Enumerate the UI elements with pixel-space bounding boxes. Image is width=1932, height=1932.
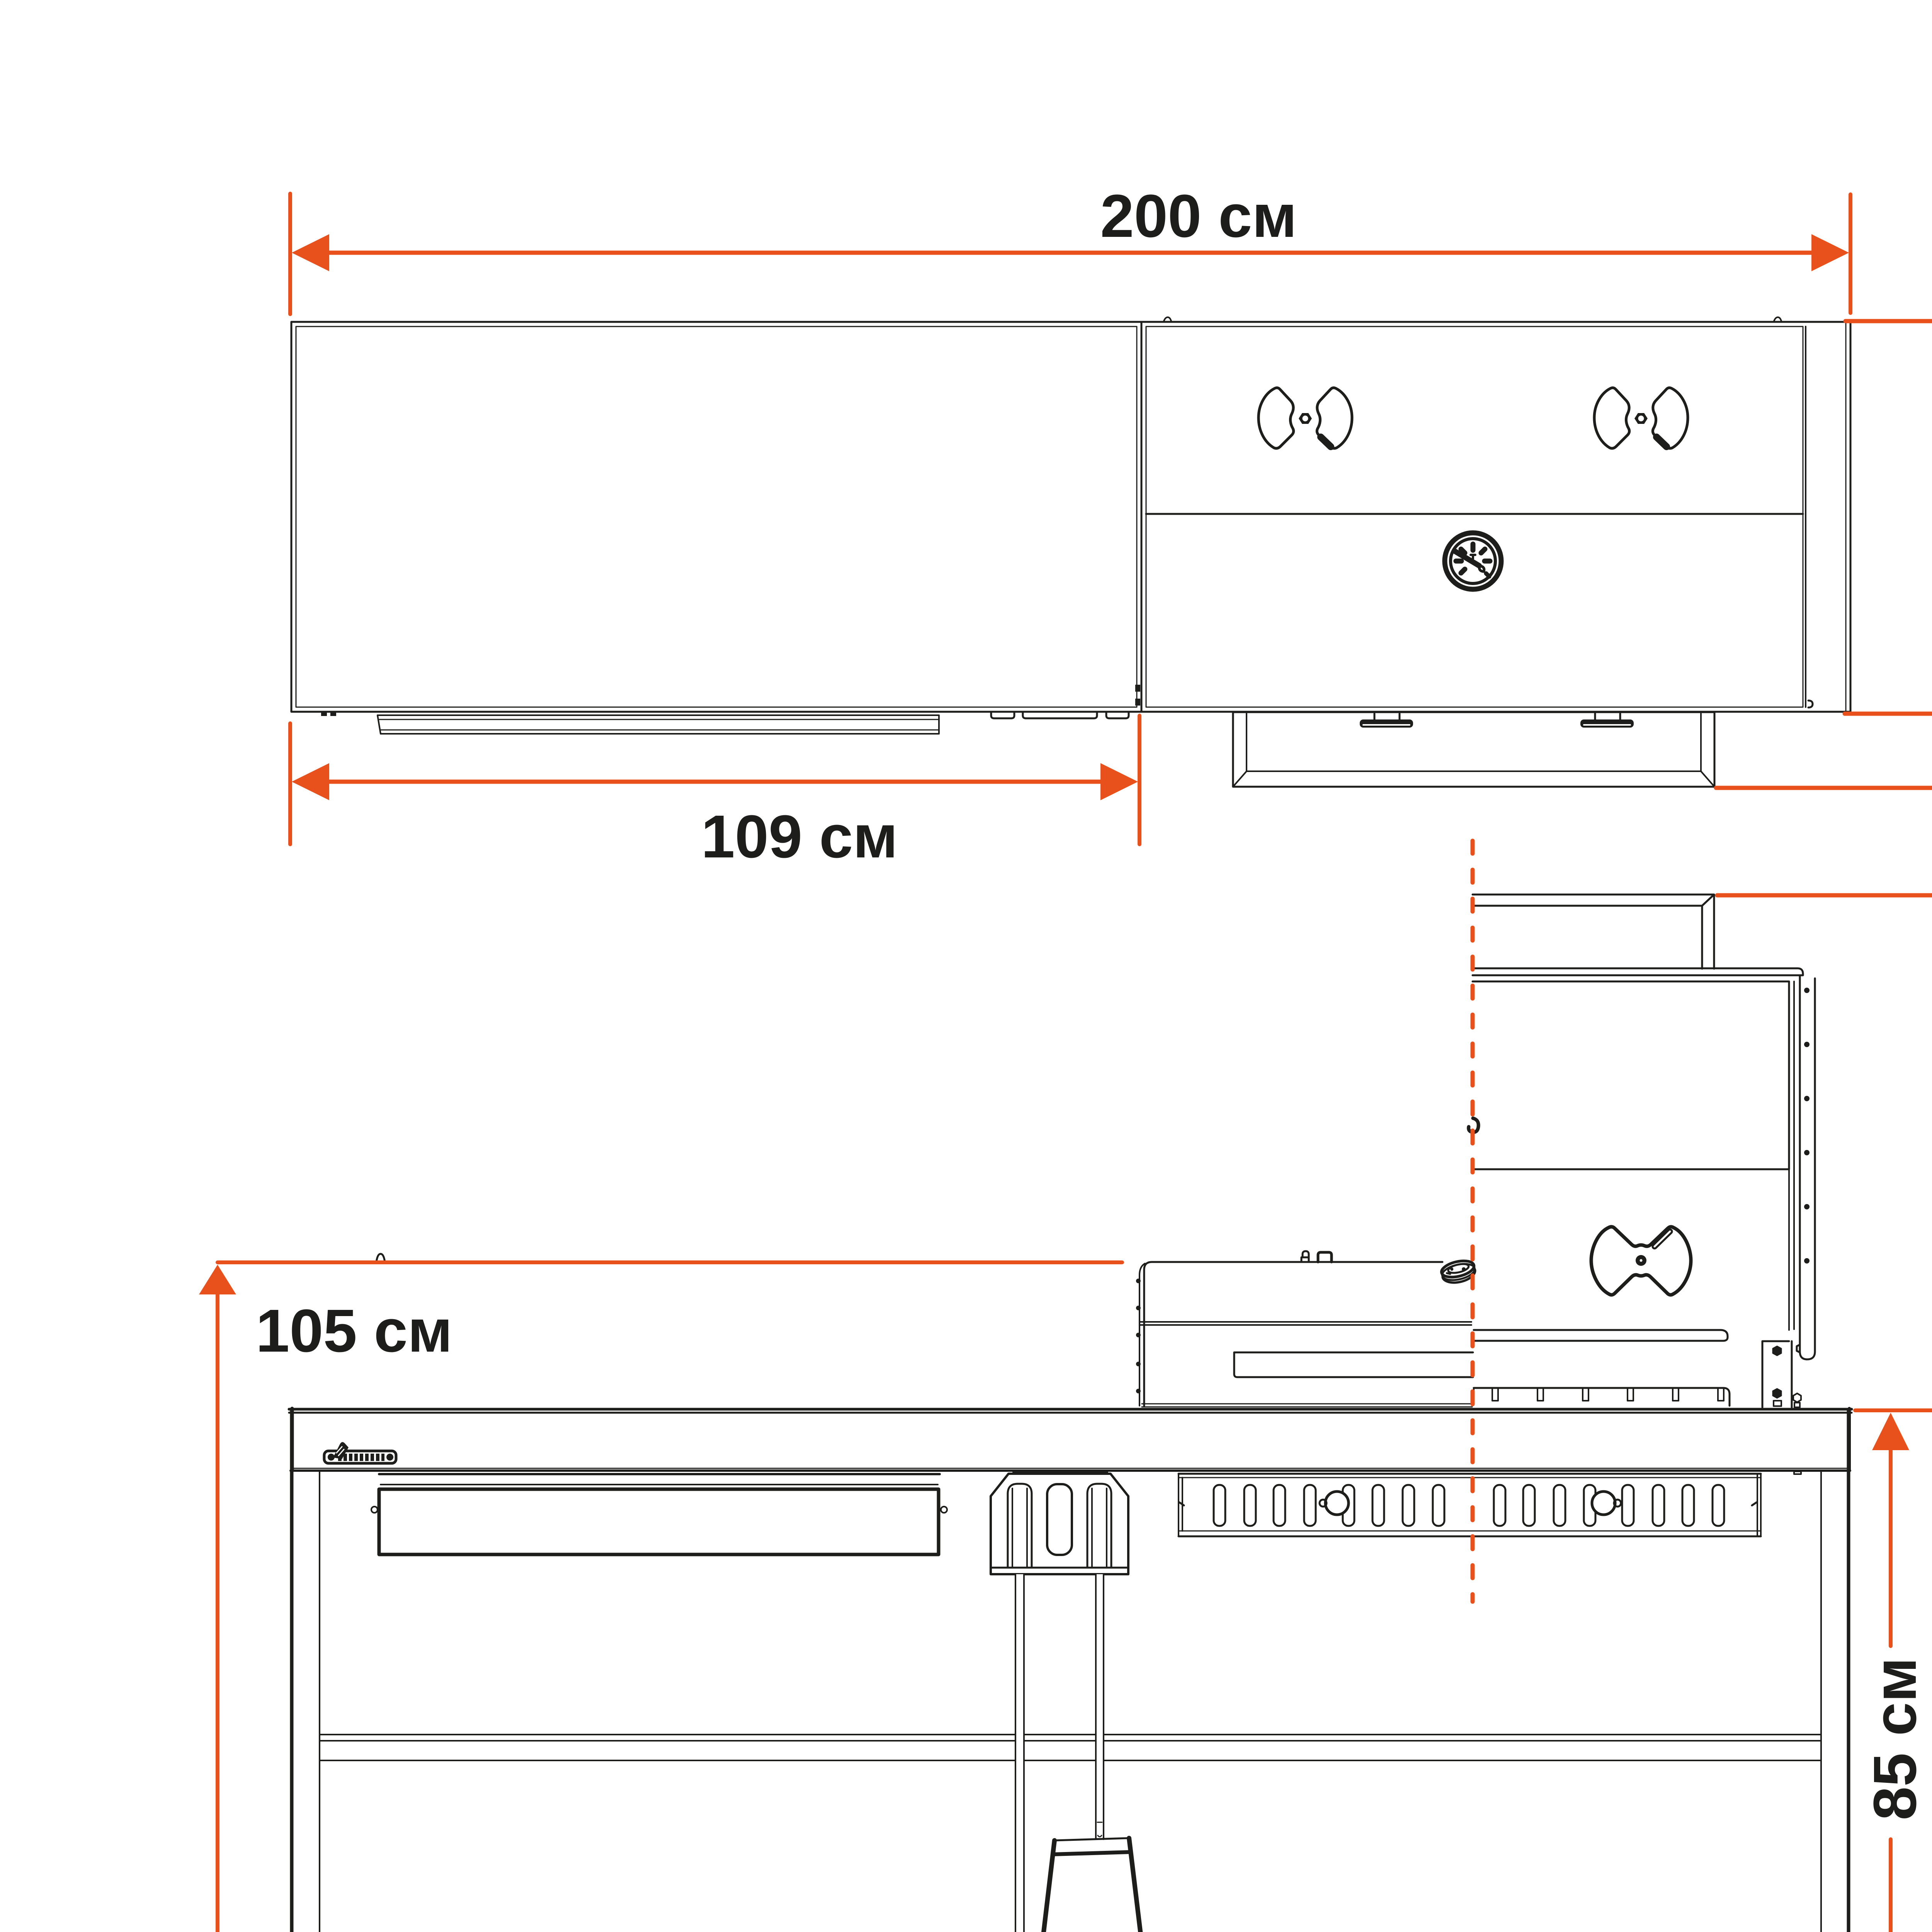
svg-text:85 см: 85 см <box>1861 1657 1929 1820</box>
svg-text:109 см: 109 см <box>701 803 898 871</box>
svg-text:200 см: 200 см <box>1100 182 1297 250</box>
svg-text:105 см: 105 см <box>256 1297 452 1365</box>
